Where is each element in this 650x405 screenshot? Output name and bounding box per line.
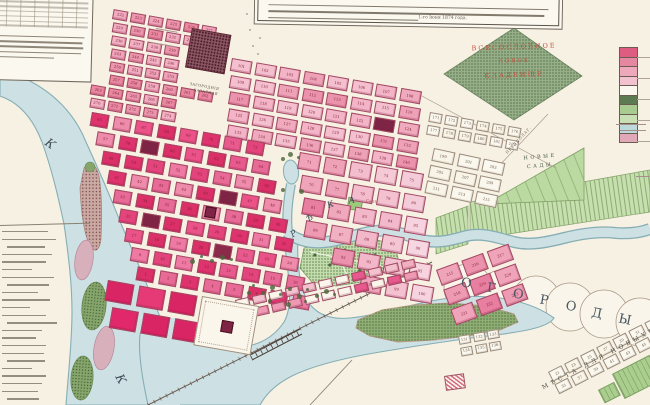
map-label: О — [460, 276, 472, 290]
map-labels-layer: ВСЕСОСЛОВНОЕНОВОЕКЛАДБИЩЕНОВЫЕСАДЫОГОРОД… — [0, 0, 650, 405]
map-label: Д — [591, 306, 604, 321]
map-label: К — [43, 136, 58, 151]
map-label: КЛАДБИЩЕ — [452, 70, 576, 81]
map-label: О — [512, 287, 525, 302]
map-label: Ѣ — [305, 213, 315, 224]
map-label: О — [565, 299, 578, 314]
map-label: ПРЕДПОЛАГ. — [505, 126, 532, 155]
map-label: К — [326, 200, 335, 210]
map-label: САДЫ — [512, 161, 568, 171]
map-label: Р — [289, 229, 298, 239]
map-label: Садъ — [366, 199, 378, 204]
map-canvas: 2222232242252262272292302312322332342362… — [0, 0, 650, 405]
map-label: НОВЫЕ — [512, 152, 568, 162]
map-label: НОВОЕ — [452, 56, 576, 66]
map-label: К — [113, 372, 128, 386]
map-label: Г — [486, 281, 496, 295]
map-label: ВСЕСОСЛОВНОЕ — [452, 42, 576, 53]
map-label: А — [348, 196, 356, 205]
map-label: Р — [539, 293, 550, 307]
map-label: Ы — [617, 312, 632, 327]
